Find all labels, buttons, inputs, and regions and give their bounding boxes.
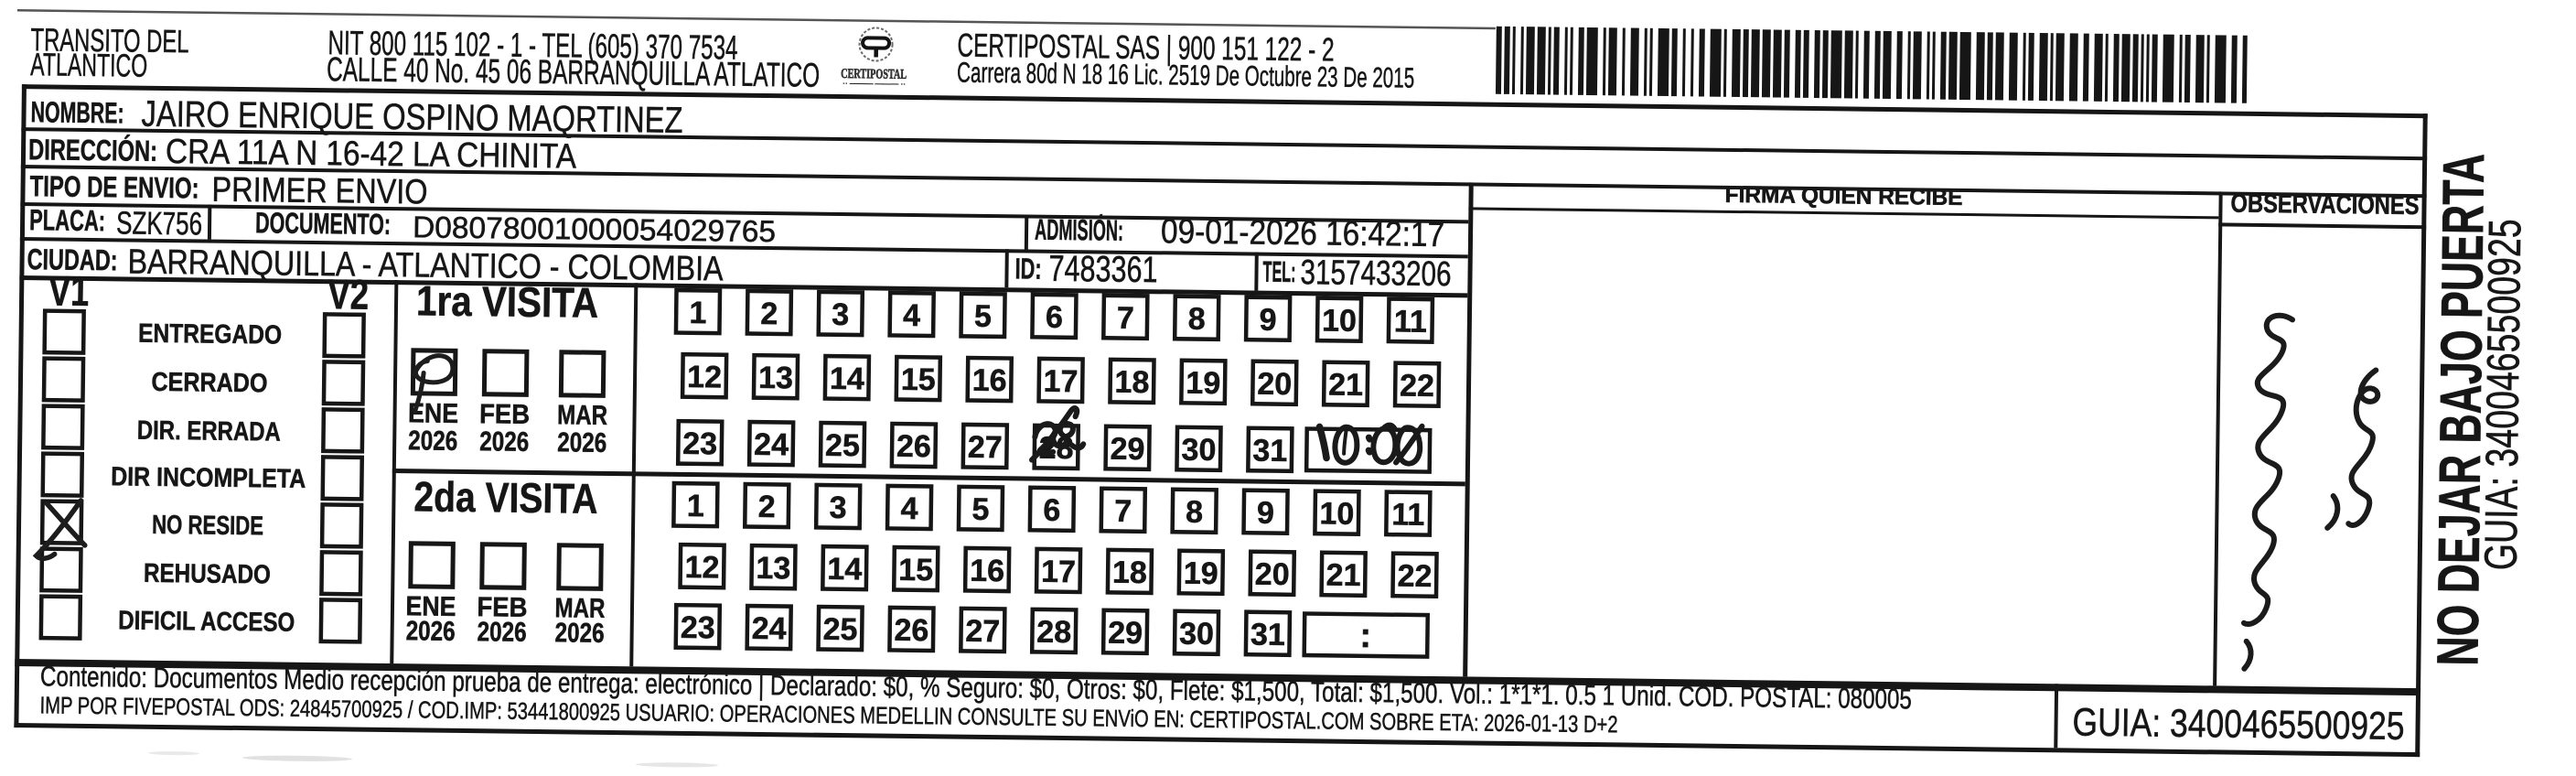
- svg-text:DOCUMENTO:: DOCUMENTO:: [255, 206, 391, 241]
- svg-text:D08078001000054029765: D08078001000054029765: [413, 210, 776, 248]
- svg-text:23: 23: [682, 426, 717, 461]
- svg-text:17: 17: [1041, 555, 1076, 589]
- svg-text:3: 3: [829, 490, 846, 525]
- svg-text:CALLE 40 No. 45 06 BARRANQUILL: CALLE 40 No. 45 06 BARRANQUILLA ATLATICO: [327, 50, 820, 94]
- svg-text:15: 15: [898, 553, 933, 587]
- svg-text:22: 22: [1400, 368, 1434, 403]
- svg-text:4: 4: [900, 491, 918, 526]
- svg-text:25: 25: [825, 428, 860, 463]
- svg-text:19: 19: [1186, 366, 1220, 401]
- svg-text:2: 2: [758, 490, 776, 524]
- svg-text:2026: 2026: [405, 616, 455, 647]
- svg-text:9: 9: [1257, 496, 1274, 531]
- svg-text:26: 26: [896, 429, 931, 464]
- svg-text:14: 14: [827, 552, 862, 587]
- svg-text:10: 10: [1322, 303, 1357, 338]
- svg-text:OBSERVACIONES: OBSERVACIONES: [2230, 189, 2419, 221]
- svg-text:18: 18: [1112, 555, 1147, 590]
- svg-text:PLACA:: PLACA:: [29, 203, 105, 237]
- svg-text:4: 4: [903, 298, 920, 333]
- svg-text:15: 15: [901, 362, 936, 397]
- svg-text:3157433206: 3157433206: [1300, 253, 1452, 294]
- svg-text:11: 11: [1391, 497, 1424, 532]
- svg-text:22: 22: [1397, 558, 1432, 593]
- svg-text::: :: [1359, 617, 1371, 655]
- svg-text:31: 31: [1250, 618, 1285, 652]
- svg-text:14: 14: [830, 361, 864, 396]
- svg-text:8: 8: [1186, 495, 1203, 530]
- svg-text:18: 18: [1114, 365, 1149, 400]
- svg-text:21: 21: [1328, 368, 1363, 403]
- svg-text:20: 20: [1255, 557, 1290, 592]
- svg-text:GUIA: 3400465500925: GUIA: 3400465500925: [2072, 701, 2405, 749]
- svg-text:V1: V1: [48, 266, 90, 315]
- svg-text:ADMISIÓN:: ADMISIÓN:: [1035, 213, 1123, 247]
- svg-text:29: 29: [1108, 616, 1143, 651]
- svg-text:25: 25: [822, 612, 857, 647]
- svg-text:29: 29: [1110, 432, 1144, 467]
- svg-text:17: 17: [1043, 364, 1078, 399]
- svg-text:21: 21: [1326, 558, 1360, 593]
- svg-text:19: 19: [1184, 556, 1218, 591]
- svg-text:3: 3: [832, 297, 849, 332]
- svg-text:30: 30: [1179, 617, 1214, 652]
- svg-text:NO RESIDE: NO RESIDE: [152, 511, 263, 541]
- svg-text:27: 27: [968, 430, 1003, 465]
- svg-text:9: 9: [1259, 303, 1276, 338]
- svg-text:DIR INCOMPLETA: DIR INCOMPLETA: [111, 462, 306, 494]
- svg-text:12: 12: [684, 550, 719, 585]
- svg-text:NOMBRE:: NOMBRE:: [30, 95, 123, 129]
- svg-text:8: 8: [1188, 302, 1206, 337]
- svg-text:GUIA: 3400465500925: GUIA: 3400465500925: [2475, 219, 2531, 571]
- svg-text:2: 2: [760, 296, 778, 331]
- svg-text:13: 13: [756, 551, 790, 586]
- svg-text:7483361: 7483361: [1048, 249, 1158, 290]
- svg-text:6: 6: [1046, 300, 1063, 335]
- svg-text:Carrera 80d N 18 16 Lic. 2519: Carrera 80d N 18 16 Lic. 2519 De Octubre…: [957, 57, 1414, 94]
- svg-text:FEB: FEB: [479, 399, 530, 430]
- svg-text:SZK756: SZK756: [116, 205, 202, 242]
- svg-text:7: 7: [1117, 301, 1134, 336]
- svg-text:PRIMER ENVIO: PRIMER ENVIO: [211, 171, 427, 212]
- svg-text:ENTREGADO: ENTREGADO: [138, 319, 282, 350]
- svg-text:V2: V2: [327, 270, 370, 318]
- svg-text:TIPO DE ENVIO:: TIPO DE ENVIO:: [29, 169, 199, 204]
- svg-text:16: 16: [972, 363, 1007, 398]
- svg-text:·· ——— ——— ··: ·· ——— ——— ··: [843, 81, 906, 88]
- svg-text:10: 10: [1319, 496, 1354, 531]
- svg-text:TEL:: TEL:: [1262, 255, 1295, 288]
- svg-text:CRA 11A N 16-42 LA CHINITA: CRA 11A N 16-42 LA CHINITA: [166, 133, 577, 176]
- svg-text:ATLANTICO: ATLANTICO: [30, 47, 147, 84]
- svg-text:ID:: ID:: [1014, 252, 1041, 285]
- svg-text:23: 23: [681, 610, 715, 645]
- svg-text:11: 11: [1394, 304, 1427, 339]
- svg-text:1: 1: [689, 296, 706, 330]
- svg-text:2026: 2026: [557, 427, 606, 458]
- svg-text:2026: 2026: [479, 426, 529, 458]
- svg-text:FIRMA QUIEN RECIBE: FIRMA QUIEN RECIBE: [1724, 182, 1962, 210]
- svg-text:5: 5: [971, 492, 989, 527]
- svg-text:2026: 2026: [554, 618, 604, 649]
- svg-text:1ra VISITA: 1ra VISITA: [416, 276, 599, 326]
- svg-text:6: 6: [1043, 493, 1060, 528]
- svg-text:12: 12: [687, 360, 722, 394]
- svg-text:1: 1: [687, 489, 704, 523]
- svg-text:26: 26: [894, 613, 928, 648]
- svg-text:REHUSADO: REHUSADO: [144, 559, 271, 590]
- svg-text:7: 7: [1114, 494, 1132, 529]
- svg-text:30: 30: [1181, 433, 1216, 468]
- svg-text:16: 16: [970, 554, 1004, 588]
- svg-text:DIRECCIÓN:: DIRECCIÓN:: [28, 133, 157, 167]
- svg-text:28: 28: [1036, 615, 1071, 650]
- svg-text:31: 31: [1252, 434, 1287, 469]
- svg-text:MAR: MAR: [557, 400, 608, 431]
- svg-text:2026: 2026: [408, 426, 457, 457]
- svg-text:2026: 2026: [477, 617, 526, 648]
- svg-text:13: 13: [758, 361, 793, 395]
- svg-text:CERRADO: CERRADO: [151, 368, 267, 399]
- svg-text:27: 27: [965, 614, 1000, 649]
- svg-text:5: 5: [974, 299, 992, 334]
- svg-text:2da VISITA: 2da VISITA: [413, 472, 598, 522]
- svg-text:20: 20: [1257, 367, 1292, 402]
- svg-text:24: 24: [754, 427, 789, 462]
- svg-text:24: 24: [751, 611, 786, 646]
- svg-text:09-01-2026 16:42:17: 09-01-2026 16:42:17: [1161, 212, 1444, 254]
- svg-text:DIFICIL ACCESO: DIFICIL ACCESO: [118, 606, 295, 637]
- svg-text:DIR. ERRADA: DIR. ERRADA: [137, 416, 281, 447]
